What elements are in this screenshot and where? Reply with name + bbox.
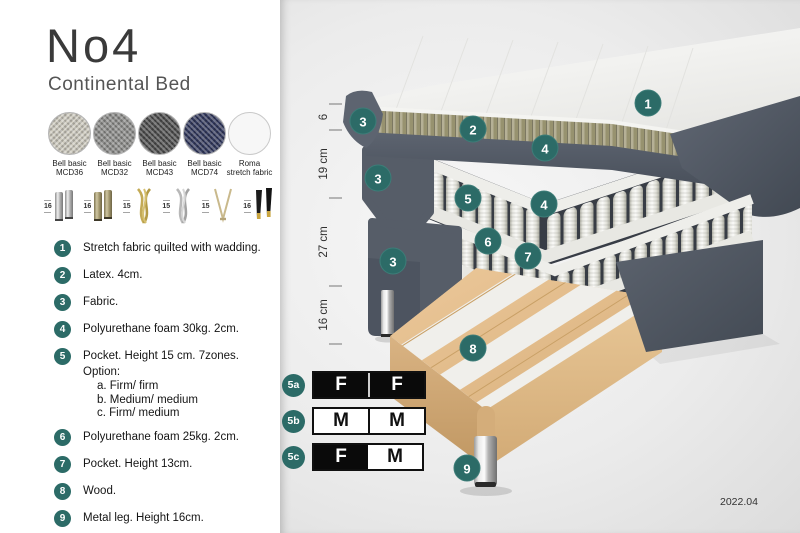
version-label: 2022.04 — [720, 496, 758, 508]
firmness-cells: F M — [312, 443, 424, 471]
firmness-row: 5a F F — [282, 371, 426, 399]
leg-height-label: 16 — [83, 198, 91, 215]
info-panel: No4 Continental Bed Bell basicMCD36 Bell… — [0, 0, 280, 533]
measurement-scale: 6 19 cm 27 cm 16 cm — [318, 104, 342, 344]
measurement-label: 6 — [318, 114, 330, 120]
fabric-swatch-label: Bell basicMCD43 — [142, 159, 176, 177]
svg-text:9: 9 — [463, 462, 470, 477]
firmness-table: 5a F F 5b M M 5c F M — [282, 371, 426, 471]
firmness-row: 5b M M — [282, 407, 426, 435]
leg-options: 16 16 — [44, 186, 276, 226]
feature-item: 4 Polyurethane foam 30kg. 2cm. — [54, 321, 274, 338]
fabric-swatch-circle — [48, 112, 91, 155]
firmness-cell: M — [368, 409, 424, 433]
feature-item: 5 Pocket. Height 15 cm. 7zones. Option: … — [54, 348, 274, 421]
firmness-cells: M M — [312, 407, 426, 435]
firmness-cell: F — [314, 445, 368, 469]
diagram-badge: 3 — [365, 165, 391, 191]
diagram-badge: 5 — [455, 185, 481, 211]
diagram-badge: 3 — [350, 108, 376, 134]
leg-option: 16 — [44, 186, 77, 226]
firmness-cell: F — [314, 373, 368, 397]
leg-option: 15 — [162, 186, 195, 226]
hairpin-leg-icon — [211, 186, 237, 226]
diagram-panel: 6 19 cm 27 cm 16 cm 1 2 3 — [280, 0, 800, 533]
firmness-row-badge: 5a — [282, 374, 305, 397]
feature-badge: 9 — [54, 510, 71, 527]
feature-badge: 2 — [54, 267, 71, 284]
feature-item: 8 Wood. — [54, 483, 274, 500]
feature-text: Polyurethane foam 30kg. 2cm. — [83, 321, 239, 337]
feature-options: a. Firm/ firm b. Medium/ medium c. Firm/… — [97, 380, 274, 421]
feature-text: Stretch fabric quilted with wadding. — [83, 240, 261, 256]
fabric-swatch-circle — [228, 112, 271, 155]
diagram-badge: 4 — [531, 191, 557, 217]
cylinder-silver-leg-icon — [53, 186, 77, 226]
leg-option: 16 — [243, 186, 276, 226]
svg-text:1: 1 — [644, 97, 651, 112]
page-subtitle: Continental Bed — [48, 74, 191, 96]
diagram-badge: 1 — [635, 90, 661, 116]
crossed-silver-leg-icon — [171, 186, 195, 226]
svg-text:3: 3 — [374, 172, 381, 187]
svg-text:5: 5 — [464, 192, 471, 207]
fabric-swatch-circle — [183, 112, 226, 155]
cylinder-bronze-leg-icon — [92, 186, 116, 226]
diagram-badge: 4 — [532, 135, 558, 161]
svg-text:8: 8 — [469, 342, 476, 357]
feature-badge: 7 — [54, 456, 71, 473]
feature-text: Pocket. Height 13cm. — [83, 456, 192, 472]
firmness-cell: F — [368, 373, 424, 397]
back-left-leg — [381, 290, 394, 337]
fabric-swatches: Bell basicMCD36 Bell basicMCD32 Bell bas… — [48, 112, 271, 177]
leg-height-label: 15 — [123, 198, 131, 215]
feature-text: Metal leg. Height 16cm. — [83, 510, 204, 526]
feature-badge: 8 — [54, 483, 71, 500]
fabric-swatch-circle — [93, 112, 136, 155]
diagram-badge: 6 — [475, 228, 501, 254]
fabric-swatch-label: Bell basicMCD36 — [52, 159, 86, 177]
spec-sheet: No4 Continental Bed Bell basicMCD36 Bell… — [0, 0, 800, 533]
feature-item: 2 Latex. 4cm. — [54, 267, 274, 284]
measurement-label: 27 cm — [318, 226, 330, 257]
feature-item: 1 Stretch fabric quilted with wadding. — [54, 240, 274, 257]
svg-text:3: 3 — [389, 255, 396, 270]
firmness-row-badge: 5b — [282, 410, 305, 433]
tapered-black-gold-leg-icon — [252, 186, 276, 226]
firmness-cell: M — [368, 445, 422, 469]
svg-text:2: 2 — [469, 123, 476, 138]
diagram-badge: 9 — [454, 455, 480, 481]
feature-item: 9 Metal leg. Height 16cm. — [54, 510, 274, 527]
firmness-cells: F F — [312, 371, 426, 399]
leg-option: 16 — [83, 186, 116, 226]
fabric-swatch-label: Bell basicMCD32 — [97, 159, 131, 177]
svg-text:6: 6 — [484, 235, 491, 250]
feature-text: Fabric. — [83, 294, 118, 310]
fabric-swatch-label: Bell basicMCD74 — [187, 159, 221, 177]
fabric-swatch: Bell basicMCD32 — [93, 112, 136, 177]
feature-item: 7 Pocket. Height 13cm. — [54, 456, 274, 473]
fabric-swatch: Bell basicMCD43 — [138, 112, 181, 177]
leg-option: 15 — [202, 186, 237, 226]
feature-badge: 6 — [54, 429, 71, 446]
leg-option: 15 — [123, 186, 156, 226]
fabric-swatch: Romastretch fabric — [228, 112, 271, 177]
fabric-swatch: Bell basicMCD36 — [48, 112, 91, 177]
svg-text:4: 4 — [541, 142, 549, 157]
leg-height-label: 15 — [202, 198, 210, 215]
leg-height-label: 15 — [162, 198, 170, 215]
diagram-badge: 2 — [460, 116, 486, 142]
feature-item: 6 Polyurethane foam 25kg. 2cm. — [54, 429, 274, 446]
svg-text:4: 4 — [540, 198, 548, 213]
leg-height-label: 16 — [243, 198, 251, 215]
firmness-row-badge: 5c — [282, 446, 305, 469]
page-title: No4 — [46, 18, 141, 73]
measurement-label: 19 cm — [318, 148, 330, 179]
fabric-swatch-label: Romastretch fabric — [227, 159, 273, 177]
feature-badge: 3 — [54, 294, 71, 311]
feature-badge: 1 — [54, 240, 71, 257]
feature-text: Wood. — [83, 483, 116, 499]
svg-text:3: 3 — [359, 115, 366, 130]
features-list: 1 Stretch fabric quilted with wadding. 2… — [54, 240, 274, 533]
fabric-swatch: Bell basicMCD74 — [183, 112, 226, 177]
firmness-row: 5c F M — [282, 443, 426, 471]
feature-badge: 4 — [54, 321, 71, 338]
svg-text:7: 7 — [524, 250, 531, 265]
feature-item: 3 Fabric. — [54, 294, 274, 311]
leg-height-label: 16 — [44, 198, 52, 215]
crossed-gold-leg-icon — [132, 186, 156, 226]
measurement-label: 16 cm — [318, 299, 330, 330]
feature-text: Latex. 4cm. — [83, 267, 142, 283]
diagram-badge: 8 — [460, 335, 486, 361]
feature-badge: 5 — [54, 348, 71, 365]
feature-text: Polyurethane foam 25kg. 2cm. — [83, 429, 239, 445]
feature-text: Pocket. Height 15 cm. 7zones. Option: — [83, 348, 274, 380]
fabric-swatch-circle — [138, 112, 181, 155]
firmness-cell: M — [314, 409, 368, 433]
diagram-badge: 7 — [515, 243, 541, 269]
diagram-badge: 3 — [380, 248, 406, 274]
